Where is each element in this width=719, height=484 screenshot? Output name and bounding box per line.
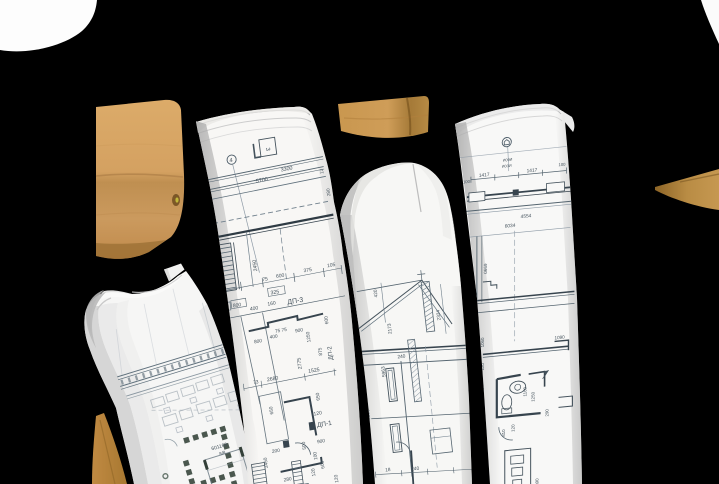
svg-text:1250: 1250 [531,391,536,402]
svg-text:240: 240 [397,353,406,360]
svg-text:100: 100 [559,162,567,168]
svg-text:2173: 2173 [387,323,394,335]
svg-text:100: 100 [463,179,471,185]
svg-text:1090: 1090 [555,334,566,340]
svg-text:2324: 2324 [435,309,442,321]
svg-text:650: 650 [315,392,322,401]
svg-text:420: 420 [373,289,380,298]
svg-text:75: 75 [262,276,268,283]
svg-text:120: 120 [333,474,340,483]
svg-text:890: 890 [535,478,540,484]
svg-text:500: 500 [301,441,308,450]
svg-text:0669: 0669 [483,263,488,274]
svg-text:280: 280 [325,188,331,197]
svg-text:650: 650 [268,406,275,415]
svg-text:120: 120 [310,468,317,477]
svg-text:120: 120 [511,424,516,432]
svg-text:810: 810 [501,429,506,437]
svg-text:4554: 4554 [521,213,532,220]
svg-text:600: 600 [323,315,330,324]
svg-text:73: 73 [253,379,259,386]
svg-text:18: 18 [385,467,391,474]
svg-text:600: 600 [320,460,327,469]
svg-text:1417: 1417 [479,172,490,179]
svg-text:240: 240 [411,466,420,473]
svg-text:290: 290 [545,408,550,416]
svg-text:100: 100 [312,451,319,460]
svg-text:6034: 6034 [505,223,516,230]
svg-text:875: 875 [317,347,324,356]
svg-text:1417: 1417 [527,167,538,174]
svg-text:1160: 1160 [523,386,528,397]
